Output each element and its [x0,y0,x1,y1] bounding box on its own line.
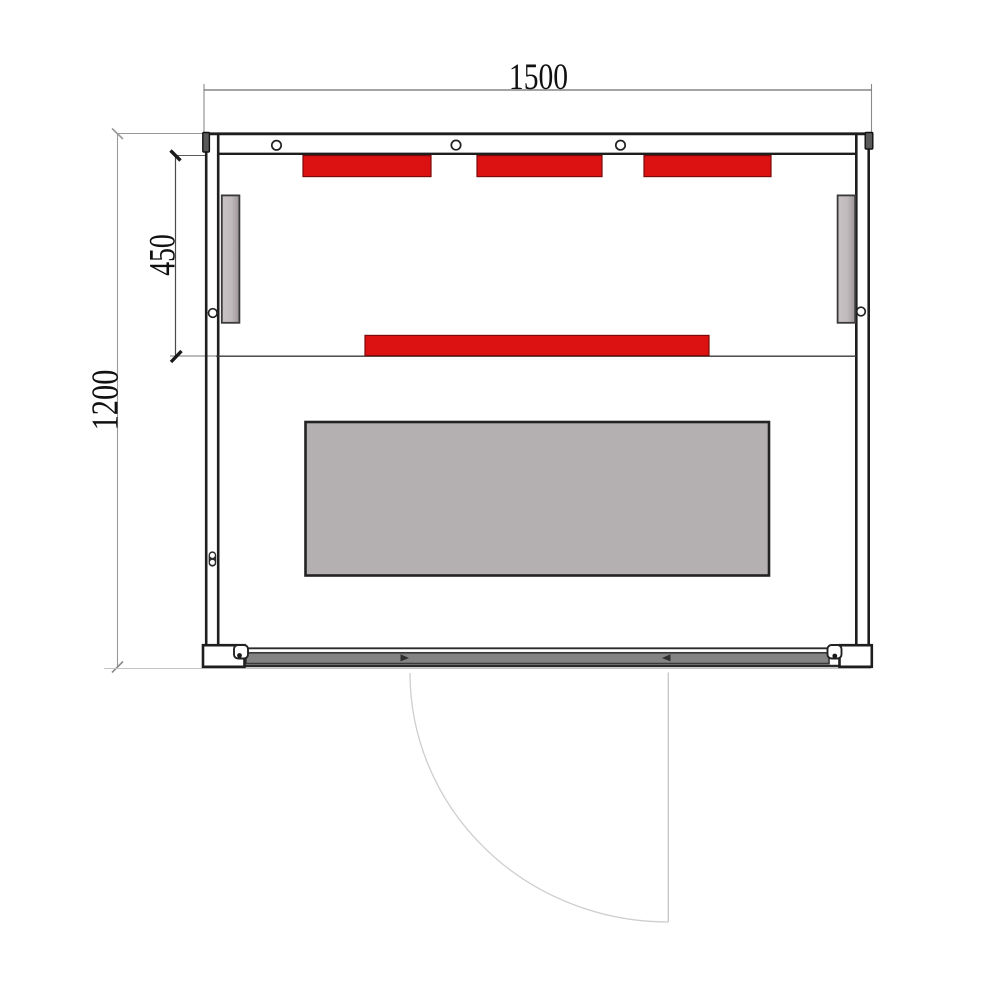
svg-text:1500: 1500 [509,57,568,98]
svg-text:1200: 1200 [84,370,126,431]
svg-text:450: 450 [143,234,184,276]
